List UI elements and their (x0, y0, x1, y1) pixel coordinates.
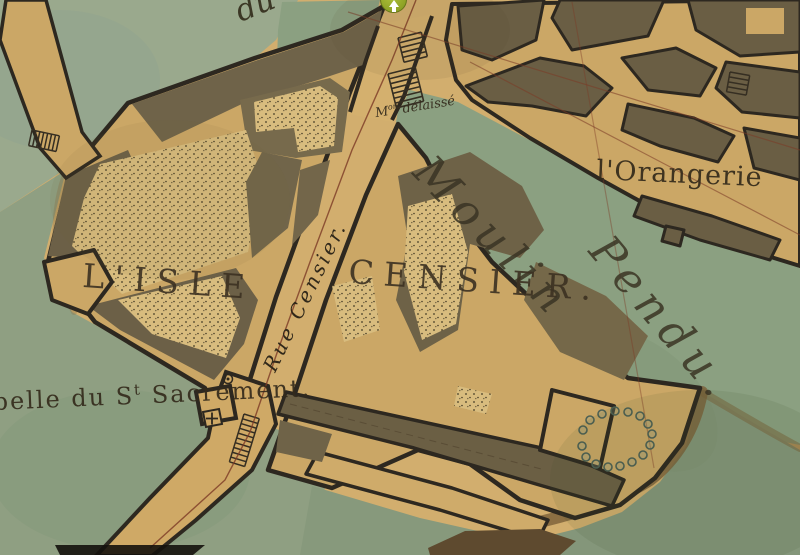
marker-up-arrow-head (389, 0, 399, 7)
town-building-small (662, 226, 684, 246)
sheet-edge-dark (55, 545, 205, 555)
marker-up-arrow-stem (392, 7, 396, 12)
historical-map-screenshot: du Mon délaissé Moulin Pendu. l'Orangeri… (0, 0, 800, 555)
town-courtyard (746, 8, 784, 34)
